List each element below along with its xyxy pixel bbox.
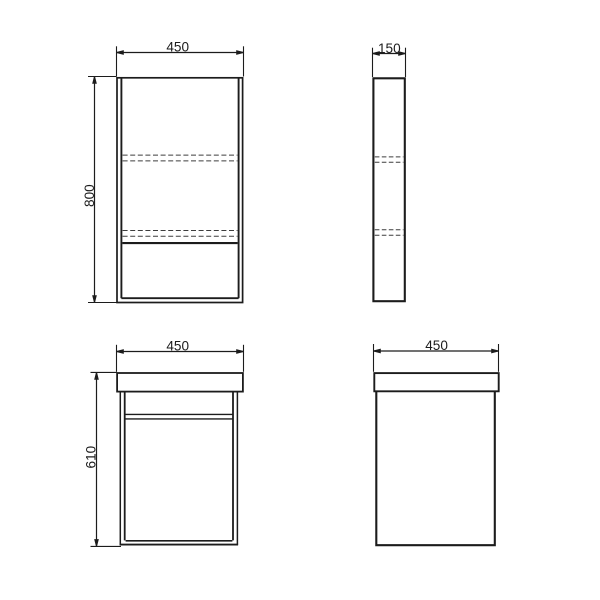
svg-text:450: 450 <box>166 40 189 55</box>
svg-text:610: 610 <box>83 445 98 468</box>
svg-text:450: 450 <box>166 338 189 353</box>
svg-text:450: 450 <box>425 338 448 353</box>
svg-text:150: 150 <box>378 41 401 56</box>
svg-text:800: 800 <box>82 184 97 207</box>
